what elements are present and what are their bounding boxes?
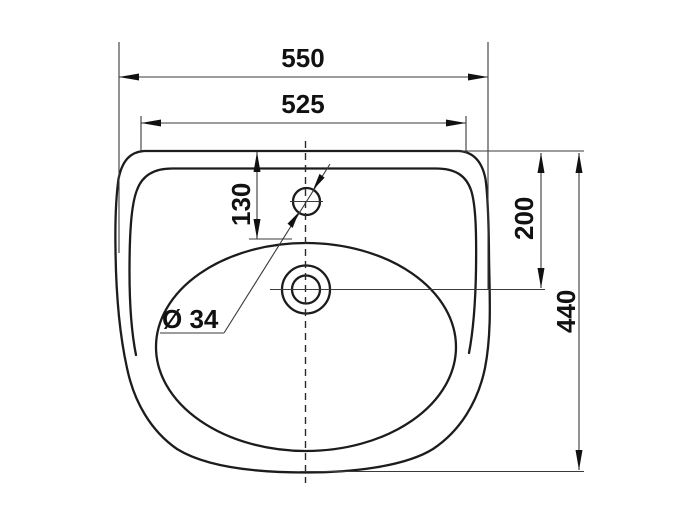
- arrow-550-left: [119, 74, 139, 81]
- label-dim-200: 200: [509, 197, 539, 240]
- arrow-200-top: [538, 153, 545, 173]
- arrow-440-bottom: [576, 450, 583, 470]
- label-dim-130: 130: [226, 183, 256, 226]
- arrow-130-top: [254, 152, 261, 172]
- arrow-525-right: [446, 120, 466, 127]
- label-dim-525: 525: [281, 89, 324, 119]
- label-dim-550: 550: [281, 43, 324, 73]
- label-dim-440: 440: [551, 290, 581, 333]
- arrow-525-left: [141, 120, 161, 127]
- technical-drawing-canvas: 550 525 130 200 440 Ø 34: [0, 0, 700, 525]
- label-dim-diameter: Ø 34: [162, 304, 219, 334]
- arrow-550-right: [468, 74, 488, 81]
- washbasin-drawing: 550 525 130 200 440 Ø 34: [0, 0, 700, 525]
- arrow-440-top: [576, 153, 583, 173]
- arrow-leader-lower: [288, 212, 300, 228]
- arrow-200-bottom: [538, 268, 545, 288]
